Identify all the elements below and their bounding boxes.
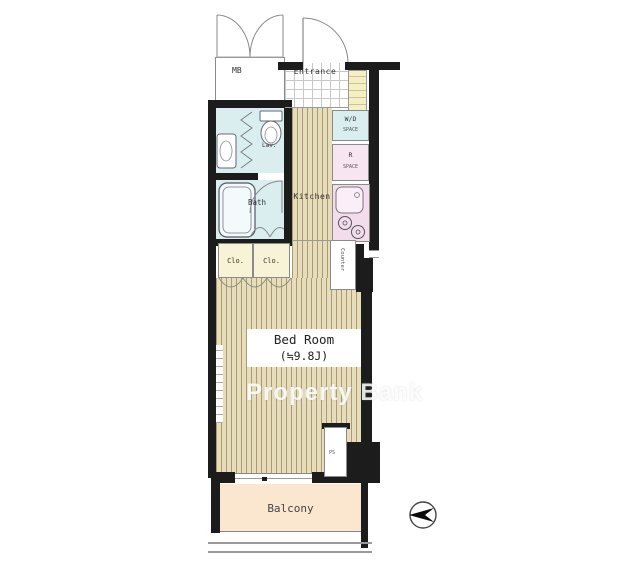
right-wall-window: [369, 250, 379, 258]
wall-right-chunk: [356, 258, 373, 292]
lavatory-label: Lav.: [262, 142, 276, 149]
bedroom-label: Bed Room: [247, 332, 361, 347]
watermark: Property Bank: [246, 379, 423, 407]
mb-label: MB: [232, 66, 242, 75]
boundary-line-2: [208, 551, 372, 553]
boundary-line-1: [208, 542, 372, 544]
wall-top-lav: [208, 100, 292, 108]
kitchen-boundary-line: [292, 240, 332, 241]
entrance-step-line: [285, 107, 348, 108]
closet-1-label: Clo.: [218, 257, 253, 265]
balcony-label: Balcony: [220, 502, 361, 515]
window-lock-mark: [262, 477, 267, 481]
entrance-door-icon: [300, 16, 350, 65]
pipe-space-label: PS: [329, 450, 335, 456]
bath-fixtures: [216, 180, 284, 240]
shoe-cabinet: [348, 70, 367, 112]
meter-box-room: [215, 57, 285, 102]
closet-2-label: Clo.: [253, 257, 290, 265]
refrigerator-space: [332, 144, 369, 181]
wall-lav-bath: [208, 173, 258, 180]
lavatory-fixtures: [216, 108, 284, 174]
wall-mid-vertical: [284, 100, 292, 245]
wall-balcony-right: [361, 483, 368, 548]
bath-label: Bath: [248, 198, 266, 207]
bedroom-left-window: [216, 345, 223, 423]
wall-top-right-stub: [278, 62, 303, 70]
closet-curtain-icon: [218, 277, 292, 297]
wall-left: [208, 100, 216, 478]
refrigerator-label: R: [332, 151, 369, 159]
counter-label: Counter: [339, 248, 345, 271]
refrigerator-sub: SPACE: [332, 164, 369, 170]
floor-plan: Entrance MB Lav.: [0, 0, 640, 569]
counter-handle: [356, 244, 364, 262]
bedroom-size-label: (≒9.8J): [247, 349, 361, 363]
wall-bottom-right-mass: [347, 442, 380, 483]
wd-space-sub: SPACE: [332, 127, 369, 133]
window-track-line: [235, 478, 312, 479]
wall-right-upper: [369, 62, 379, 250]
compass-icon: [404, 498, 442, 536]
sink-stove-icon: [332, 184, 370, 242]
pipe-space: [324, 427, 347, 477]
wall-right-lower: [361, 292, 372, 443]
kitchen-label: Kitchen: [288, 192, 336, 201]
wall-balcony-left: [211, 478, 220, 533]
wd-space-label: W/D: [332, 115, 369, 123]
mb-double-door-icon: [215, 13, 285, 59]
